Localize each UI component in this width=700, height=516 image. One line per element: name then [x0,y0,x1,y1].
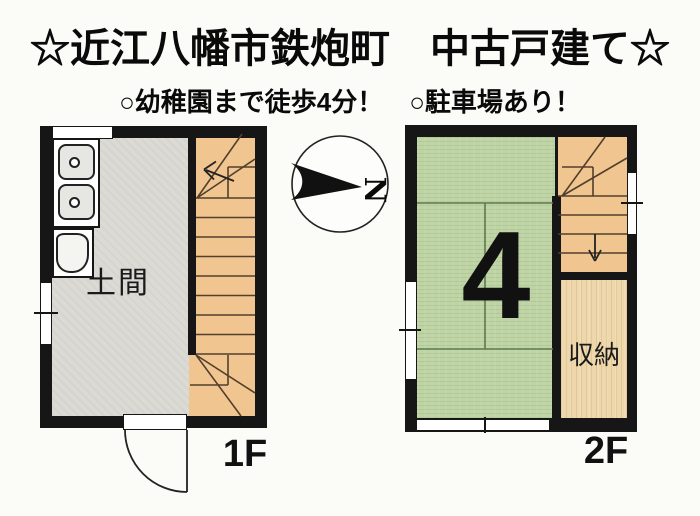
kitchen-counter [52,138,100,228]
window-left-2f [405,281,417,380]
tatami-size-label: 4 [432,214,560,338]
window-bottom-2f [416,419,550,431]
page-title: ☆近江八幡市鉄炮町 中古戸建て☆ [0,16,700,74]
window-right-2f [627,172,637,235]
floorplan-flyer: ☆近江八幡市鉄炮町 中古戸建て☆ ○幼稚園まで徒歩4分！ ○駐車場あり！ [0,0,700,516]
window-top-1f [52,126,113,139]
staircase-1f [189,138,255,416]
floorplan-1f [40,126,267,428]
sink-basin [58,184,95,220]
sink-drain-icon [69,157,80,168]
stair-wall-1f [188,138,196,355]
doma-label: 土間 [86,258,150,302]
toilet-bowl-icon [56,233,89,273]
staircase-2f [556,137,627,272]
floor1-label: 1F [215,433,275,476]
window-left-1f [40,282,52,345]
floor2-label: 2F [576,430,636,473]
sink-drain-icon [69,197,80,208]
entrance-door-swing-icon [125,430,187,492]
compass-needle-icon [291,163,362,200]
partition-line-2f [555,137,558,200]
compass-north-label: N [360,174,390,206]
sink-basin [58,144,95,180]
subtitle-features: ○幼稚園まで徒歩4分！ ○駐車場あり！ [0,82,700,119]
stair-bottom-wall-2f [553,272,627,280]
entrance-door-opening [123,414,187,430]
storage-label: 収納 [561,335,627,372]
